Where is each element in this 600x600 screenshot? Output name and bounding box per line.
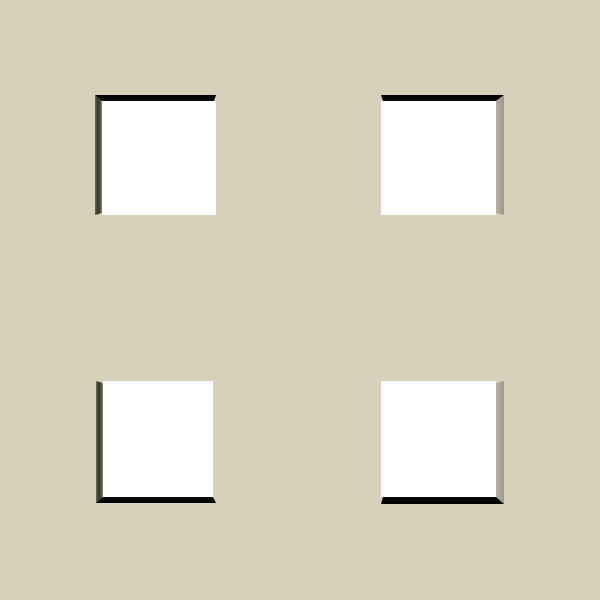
white-opening — [103, 381, 213, 497]
cutout-square-bottom-left — [96, 381, 216, 503]
left-shadow-bevel — [95, 95, 102, 215]
bottom-shadow-bevel — [96, 497, 216, 503]
cutout-square-top-right — [381, 95, 504, 215]
top-shadow-bevel — [381, 95, 504, 101]
cutout-square-top-left — [95, 95, 216, 215]
top-shadow-bevel — [95, 95, 216, 101]
bottom-shadow-bevel — [381, 497, 504, 504]
white-opening — [381, 381, 496, 497]
matboard-background — [0, 0, 600, 600]
white-opening — [102, 101, 216, 215]
right-shadow-bevel — [496, 95, 504, 215]
cutout-square-bottom-right — [381, 381, 504, 504]
left-shadow-bevel — [96, 381, 103, 503]
white-opening — [381, 101, 496, 215]
right-shadow-bevel — [496, 381, 504, 504]
